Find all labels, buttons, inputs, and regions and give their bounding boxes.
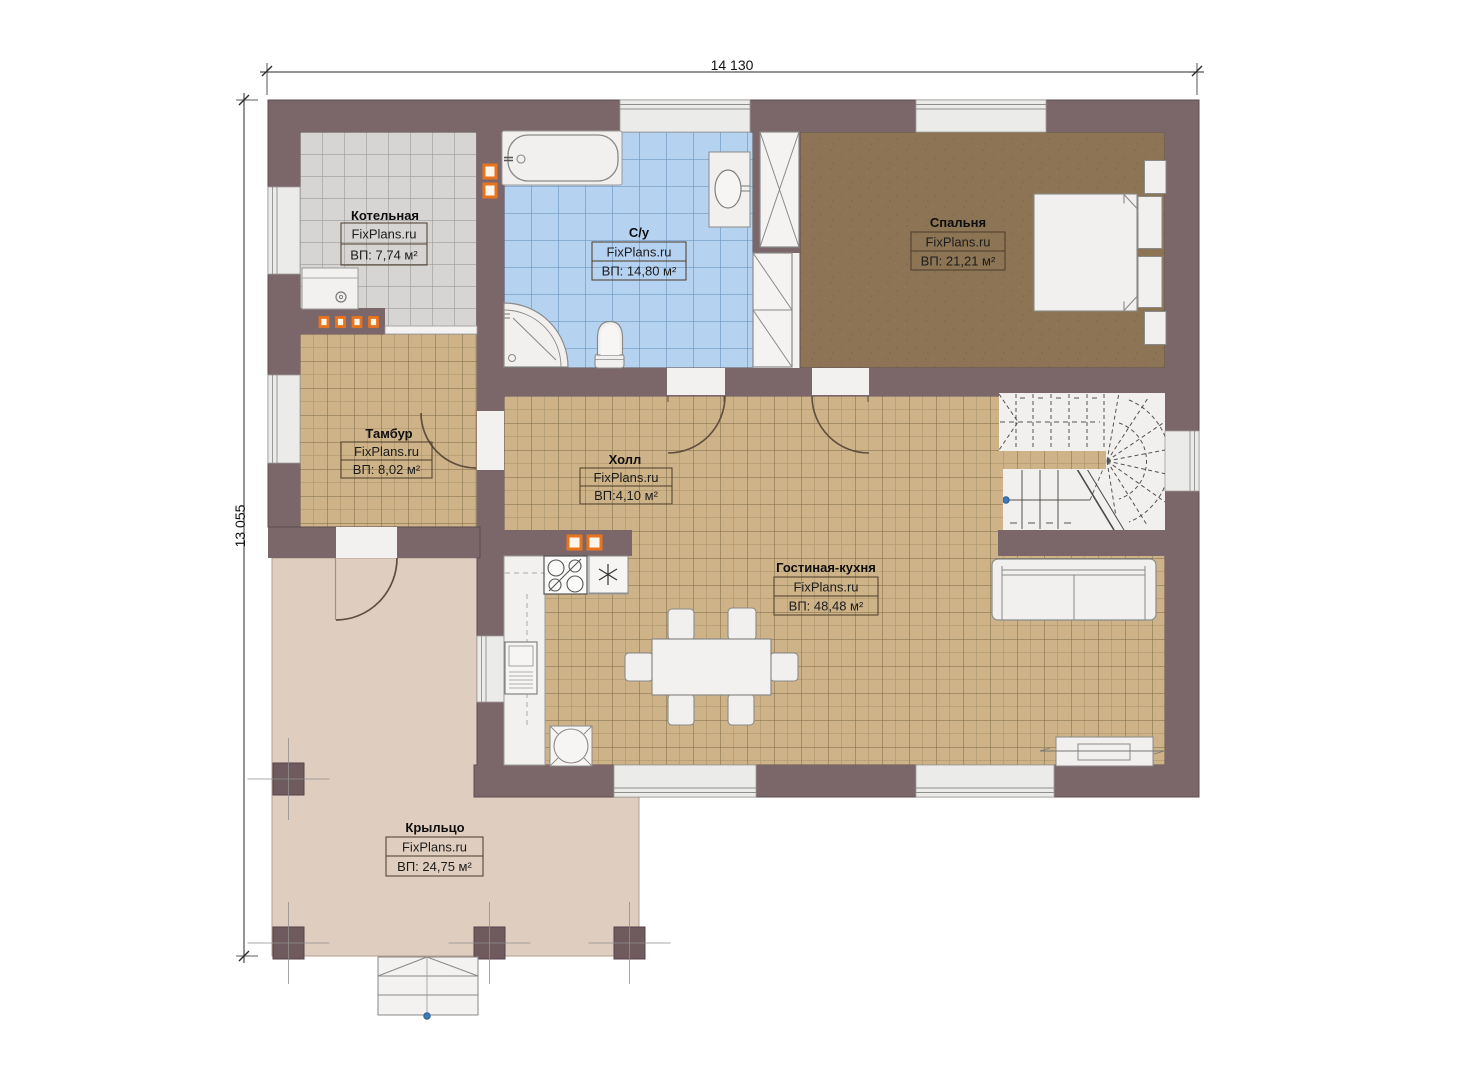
svg-text:ВП: 21,21 м²: ВП: 21,21 м²	[921, 254, 996, 269]
svg-text:13 055: 13 055	[232, 504, 248, 547]
svg-text:Котельная: Котельная	[351, 208, 419, 223]
svg-text:FixPlans.ru: FixPlans.ru	[606, 245, 671, 260]
svg-text:FixPlans.ru: FixPlans.ru	[925, 235, 990, 250]
svg-text:FixPlans.ru: FixPlans.ru	[593, 470, 658, 485]
svg-text:FixPlans.ru: FixPlans.ru	[793, 580, 858, 595]
svg-text:Крыльцо: Крыльцо	[405, 820, 464, 835]
svg-text:С/у: С/у	[629, 225, 650, 240]
svg-text:Гостиная-кухня: Гостиная-кухня	[776, 560, 876, 575]
svg-text:FixPlans.ru: FixPlans.ru	[354, 444, 419, 459]
svg-text:ВП: 8,02 м²: ВП: 8,02 м²	[353, 462, 421, 477]
svg-text:ВП:4,10 м²: ВП:4,10 м²	[594, 488, 658, 503]
svg-text:FixPlans.ru: FixPlans.ru	[402, 840, 467, 855]
svg-text:Тамбур: Тамбур	[365, 426, 412, 441]
svg-text:14 130: 14 130	[711, 57, 754, 73]
svg-text:Спальня: Спальня	[930, 215, 986, 230]
svg-text:ВП: 48,48 м²: ВП: 48,48 м²	[789, 599, 864, 614]
svg-text:ВП: 24,75 м²: ВП: 24,75 м²	[397, 859, 472, 874]
svg-text:ВП: 7,74 м²: ВП: 7,74 м²	[350, 248, 418, 263]
svg-text:ВП: 14,80 м²: ВП: 14,80 м²	[602, 264, 677, 279]
svg-text:Холл: Холл	[609, 452, 642, 467]
svg-text:FixPlans.ru: FixPlans.ru	[351, 227, 416, 242]
